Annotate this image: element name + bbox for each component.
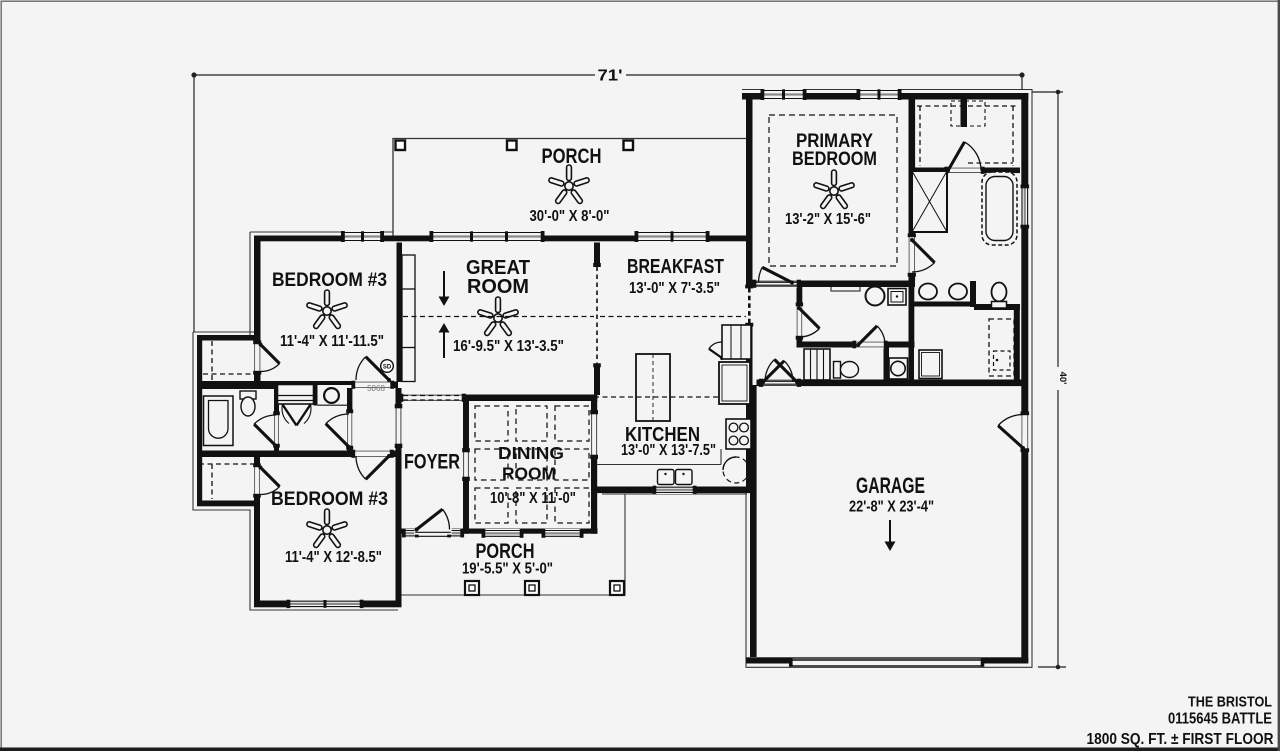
svg-text:FOYER: FOYER bbox=[404, 450, 460, 474]
svg-text:BREAKFAST: BREAKFAST bbox=[627, 255, 724, 278]
svg-text:PORCH: PORCH bbox=[542, 144, 602, 168]
svg-text:16'-9.5" X 13'-3.5": 16'-9.5" X 13'-3.5" bbox=[453, 338, 564, 355]
svg-text:DINING: DINING bbox=[498, 443, 564, 463]
svg-text:SD: SD bbox=[383, 365, 392, 371]
svg-text:5068: 5068 bbox=[367, 384, 385, 393]
svg-text:13'-0" X 7'-3.5": 13'-0" X 7'-3.5" bbox=[629, 280, 720, 297]
svg-text:0115645 BATTLE: 0115645 BATTLE bbox=[1168, 711, 1272, 728]
svg-text:19'-5.5" X 5'-0": 19'-5.5" X 5'-0" bbox=[462, 561, 553, 578]
svg-text:BEDROOM #3: BEDROOM #3 bbox=[271, 488, 388, 510]
svg-text:10'-8" X 11'-0": 10'-8" X 11'-0" bbox=[490, 490, 576, 507]
svg-text:ROOM: ROOM bbox=[467, 275, 529, 298]
svg-text:THE BRISTOL: THE BRISTOL bbox=[1188, 694, 1272, 711]
svg-text:71': 71' bbox=[598, 68, 623, 85]
svg-text:13'-2" X 15'-6": 13'-2" X 15'-6" bbox=[785, 211, 871, 228]
svg-text:ROOM: ROOM bbox=[502, 464, 556, 484]
svg-text:22'-8" X 23'-4": 22'-8" X 23'-4" bbox=[849, 499, 934, 516]
svg-text:BEDROOM: BEDROOM bbox=[792, 148, 877, 170]
svg-text:11'-4" X 11'-11.5": 11'-4" X 11'-11.5" bbox=[280, 333, 384, 350]
svg-text:11'-4" X 12'-8.5": 11'-4" X 12'-8.5" bbox=[285, 549, 382, 566]
svg-text:30'-0" X 8'-0": 30'-0" X 8'-0" bbox=[530, 208, 610, 225]
svg-text:13'-0" X 13'-7.5": 13'-0" X 13'-7.5" bbox=[621, 442, 716, 459]
svg-text:GARAGE: GARAGE bbox=[856, 473, 925, 498]
svg-text:40': 40' bbox=[1057, 372, 1068, 385]
svg-text:1800 SQ. FT. ± FIRST FLOOR: 1800 SQ. FT. ± FIRST FLOOR bbox=[1087, 731, 1274, 748]
svg-text:BEDROOM #3: BEDROOM #3 bbox=[272, 269, 387, 291]
